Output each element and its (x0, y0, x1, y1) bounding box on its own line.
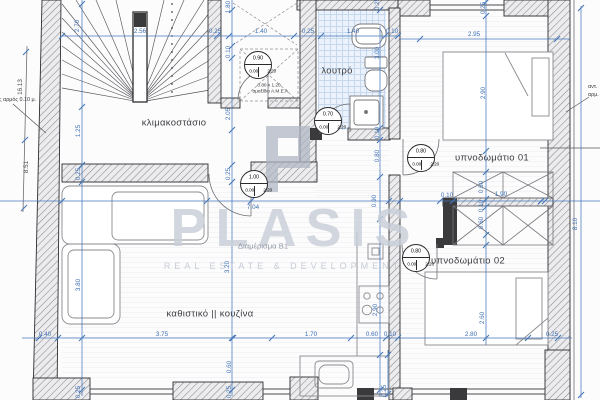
door-sill: 0.00 (412, 161, 421, 167)
room-label: κλιμακοστάσιο (142, 118, 207, 129)
dimension-label: 1.25 (75, 125, 82, 137)
door-sill: 0.00 (407, 261, 416, 267)
door-head: 2.20 (430, 161, 439, 167)
dimension-label: 0.10 (384, 331, 396, 338)
dimension-label: 2.90 (480, 87, 487, 99)
dimension-label: 2.56 (134, 28, 146, 35)
dimension-label: 1.70 (305, 331, 317, 338)
dimension-label: 0.25 (374, 0, 381, 10)
dimension-label: 1.40 (347, 28, 359, 35)
door-width: 0.80 (413, 148, 428, 155)
dimension-label: 0.10 (441, 192, 453, 199)
dimension-label: 0.25 (302, 28, 314, 35)
dimension-label: 0.40 (39, 331, 51, 338)
dimension-label: 0.25 (225, 168, 232, 180)
dimension-label: 1.40 (255, 28, 267, 35)
door-head: 2.20 (267, 68, 276, 74)
dimension-label: 8.51 (23, 161, 30, 173)
dimension-label: 0.60 (366, 331, 378, 338)
dimension-label: 0.25 (546, 331, 558, 338)
amea-note: 0.80 x 1.20 αμαξίδιο Α.Μ.Ε.Α. (253, 82, 286, 94)
room-label: υπνοδωμάτιο 01 (455, 153, 529, 164)
door-sill: 0.00 (245, 187, 254, 193)
dimension-label: 2.60 (479, 312, 486, 324)
dimension-label: 0.60 (478, 181, 485, 193)
dimension-label: 0.60 (226, 361, 233, 373)
dimension-label: 1.80 (225, 1, 232, 13)
dimension-label: 0.10 (225, 46, 232, 58)
dimension-label: 0.10 (386, 28, 398, 35)
dimension-label: 0.80 (374, 150, 381, 162)
labels-layer: 0.80 x 1.20 αμαξίδιο Α.Μ.Ε.Α. ς αρμός 0.… (0, 0, 600, 400)
dimension-label: 3.20 (224, 261, 231, 273)
door-head: 2.20 (263, 187, 272, 193)
dimension-label: 16.13 (17, 79, 24, 95)
door-tag: 0.800.002.20 (407, 144, 435, 172)
door-sill: 0.00 (319, 124, 328, 130)
door-head: 2.20 (425, 261, 434, 267)
right-edge-note: αντ. (588, 83, 597, 89)
dimension-label: 0.25 (381, 385, 388, 397)
dimension-label: 0.25 (226, 386, 233, 398)
dimension-label: 7.04 (247, 204, 259, 211)
dimension-label: 0.90 (371, 195, 378, 207)
dimension-label: 2.70 (74, 20, 81, 32)
dimension-label: 0.10 (478, 200, 485, 212)
dimension-label: 2.90 (372, 304, 379, 316)
floor-plan: PLASIS REAL ESTATE & DEVELOPMENT Διαμέρι… (0, 0, 600, 400)
dimension-label: 2.05 (225, 108, 232, 120)
door-width: 0.70 (320, 111, 335, 118)
dimension-label: 0.25 (75, 386, 82, 398)
dimension-label: 8.10 (572, 218, 579, 230)
dimension-label: 3.00 (374, 47, 381, 59)
door-tag: 0.700.002.20 (314, 107, 342, 135)
dimension-label: 1.90 (495, 191, 507, 198)
room-label: λουτρό (321, 66, 352, 77)
door-width: 0.90 (250, 55, 265, 62)
dimension-label: 0.25 (480, 2, 487, 14)
room-label: υπνοδωμάτιο 02 (431, 256, 505, 267)
right-edge-note: αρμ. (588, 91, 599, 97)
dimension-label: 0.10 (374, 127, 381, 139)
door-tag: 0.900.002.20 (244, 51, 272, 79)
dimension-label: 2.80 (465, 331, 477, 338)
dimension-label: 3.80 (75, 279, 82, 291)
dimension-label: 0.60 (478, 217, 485, 229)
dimension-label: 0.25 (209, 28, 221, 35)
dimension-label: 0.25 (75, 168, 82, 180)
door-tag: 1.000.002.20 (240, 170, 268, 198)
dimension-label: 3.75 (156, 331, 168, 338)
door-width: 0.80 (408, 248, 423, 255)
door-width: 1.00 (246, 174, 261, 181)
door-tag: 0.800.002.20 (402, 244, 430, 272)
dimension-label: 2.95 (468, 31, 480, 38)
door-sill: 0.00 (249, 68, 258, 74)
room-label: καθιστικό || κουζίνα (166, 309, 253, 320)
door-head: 2.20 (337, 124, 346, 130)
seismic-joint-note: ς αρμός 0.10 μ. (0, 96, 36, 102)
